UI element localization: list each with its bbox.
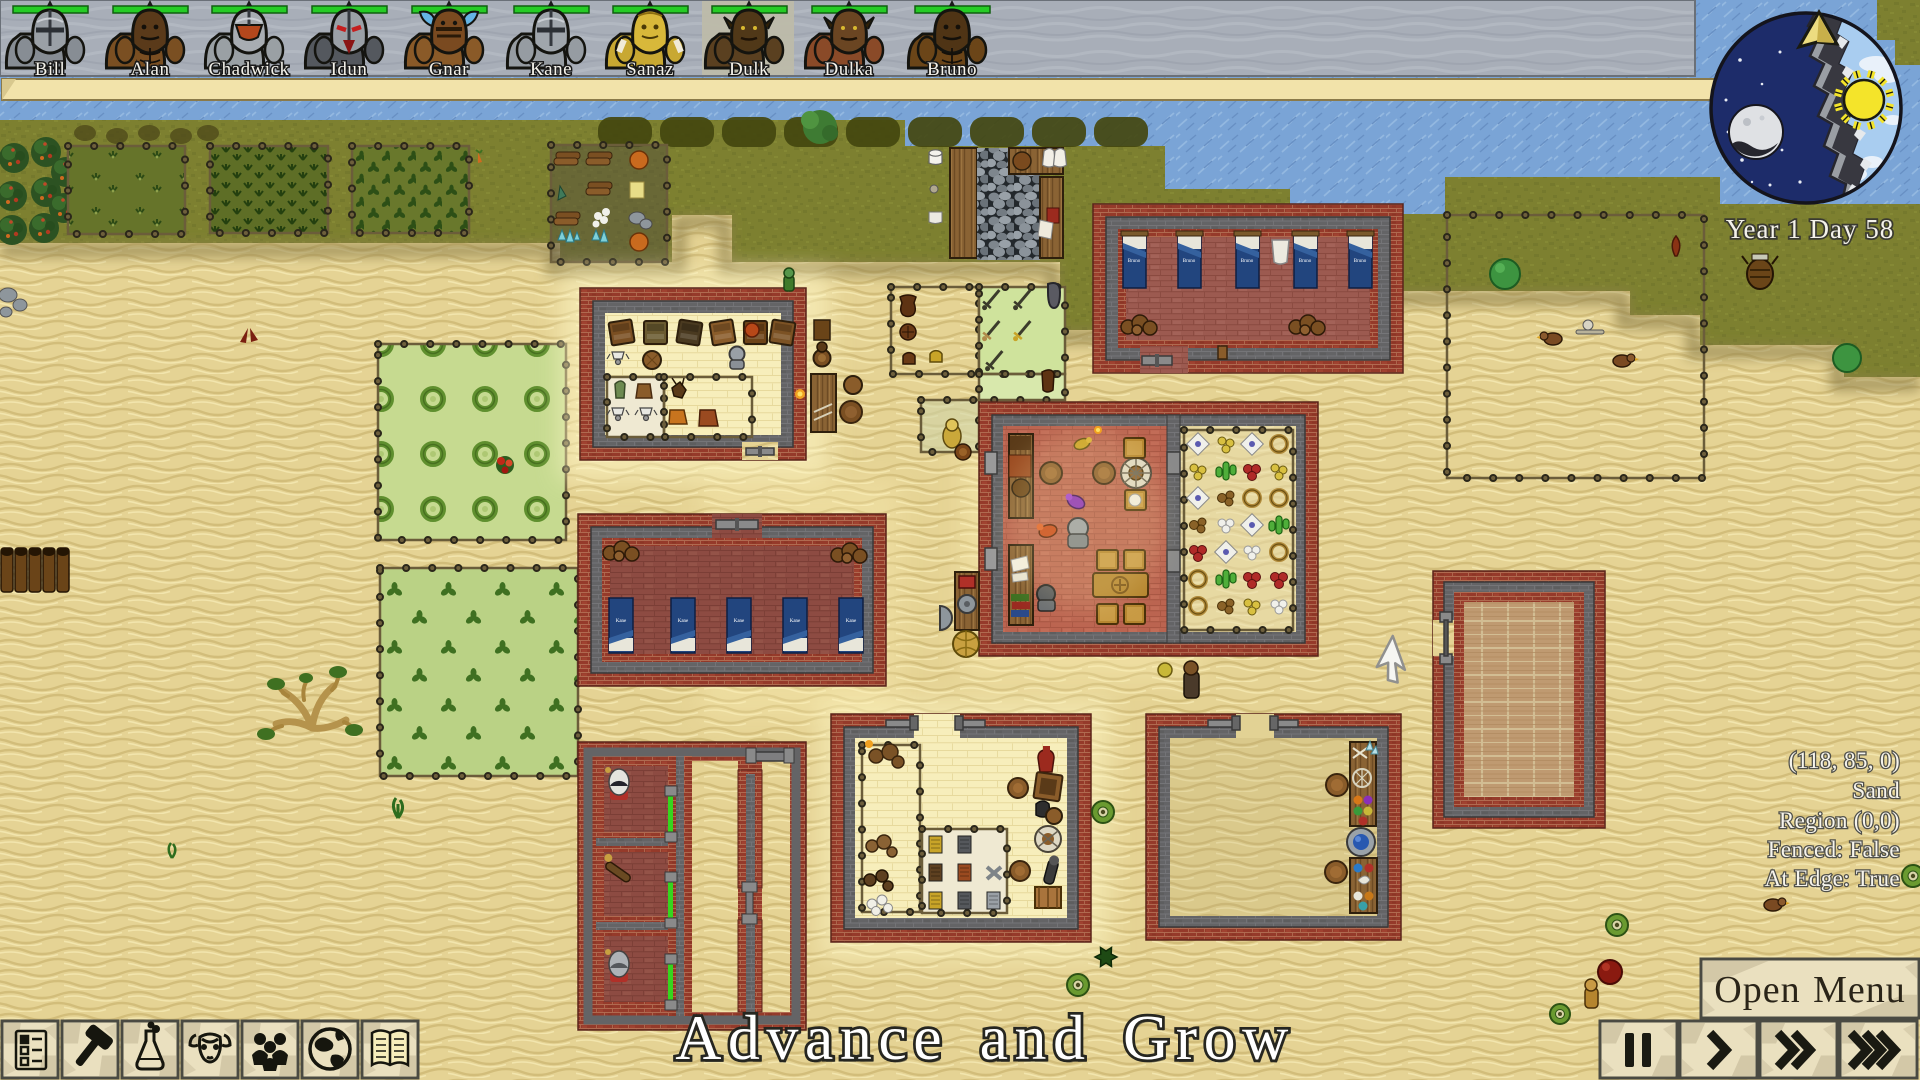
svg-text:Kane: Kane bbox=[790, 619, 801, 624]
svg-text:Bruno: Bruno bbox=[1128, 259, 1141, 264]
svg-text:Chadwick: Chadwick bbox=[208, 59, 289, 80]
svg-text:Dulk: Dulk bbox=[729, 59, 769, 80]
svg-text:Bruno: Bruno bbox=[1354, 259, 1367, 264]
svg-text:Sanaz: Sanaz bbox=[626, 59, 674, 80]
svg-text:Alan: Alan bbox=[131, 59, 170, 80]
svg-text:Sand: Sand bbox=[1852, 778, 1900, 803]
svg-text:Bruno: Bruno bbox=[927, 59, 977, 80]
svg-text:Kane: Kane bbox=[530, 59, 572, 80]
svg-text:Fenced: False: Fenced: False bbox=[1768, 837, 1900, 862]
svg-text:Idun: Idun bbox=[331, 59, 368, 80]
svg-text:Gnar: Gnar bbox=[429, 59, 469, 80]
svg-text:Kane: Kane bbox=[616, 619, 627, 624]
svg-text:(118, 85, 0): (118, 85, 0) bbox=[1789, 748, 1900, 773]
svg-text:Bruno: Bruno bbox=[1299, 259, 1312, 264]
svg-text:Bruno: Bruno bbox=[1241, 259, 1254, 264]
svg-text:Bruno: Bruno bbox=[1183, 259, 1196, 264]
svg-text:Kane: Kane bbox=[846, 619, 857, 624]
svg-text:Bill: Bill bbox=[35, 59, 66, 80]
svg-text:Advance and Grow: Advance and Grow bbox=[675, 1002, 1295, 1073]
svg-text:Kane: Kane bbox=[678, 619, 689, 624]
svg-text:Year 1 Day 58: Year 1 Day 58 bbox=[1726, 214, 1895, 244]
svg-text:Dulka: Dulka bbox=[825, 59, 874, 80]
svg-text:Open Menu: Open Menu bbox=[1714, 969, 1905, 1011]
svg-text:Region (0,0): Region (0,0) bbox=[1779, 808, 1900, 833]
svg-text:At Edge: True: At Edge: True bbox=[1764, 866, 1900, 891]
svg-text:Kane: Kane bbox=[734, 619, 745, 624]
